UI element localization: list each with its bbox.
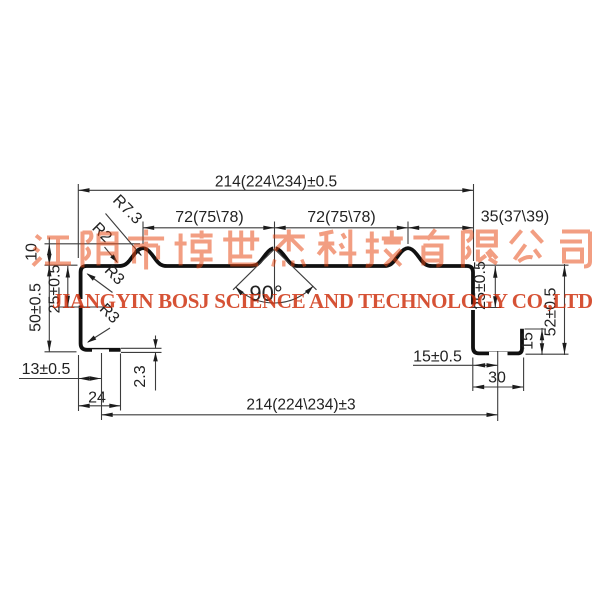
svg-text:15±0.5: 15±0.5 — [413, 349, 462, 366]
svg-text:2.3: 2.3 — [132, 365, 149, 387]
svg-text:50±0.5: 50±0.5 — [28, 283, 45, 332]
svg-text:72(75\78): 72(75\78) — [307, 209, 376, 226]
svg-text:72(75\78): 72(75\78) — [175, 209, 244, 226]
svg-text:JIANGYIN BOSJ SCIENCE AND TECH: JIANGYIN BOSJ SCIENCE AND TECHNOLOGY CO.… — [52, 289, 593, 313]
svg-text:35(37\39): 35(37\39) — [481, 209, 550, 226]
svg-text:214(224\234)±3: 214(224\234)±3 — [246, 397, 355, 414]
svg-text:30: 30 — [488, 370, 506, 387]
svg-text:13±0.5: 13±0.5 — [22, 361, 71, 378]
svg-text:R7.3: R7.3 — [109, 192, 145, 228]
svg-text:15: 15 — [520, 332, 537, 350]
svg-text:24: 24 — [88, 390, 106, 407]
svg-text:214(224\234)±0.5: 214(224\234)±0.5 — [215, 174, 337, 191]
